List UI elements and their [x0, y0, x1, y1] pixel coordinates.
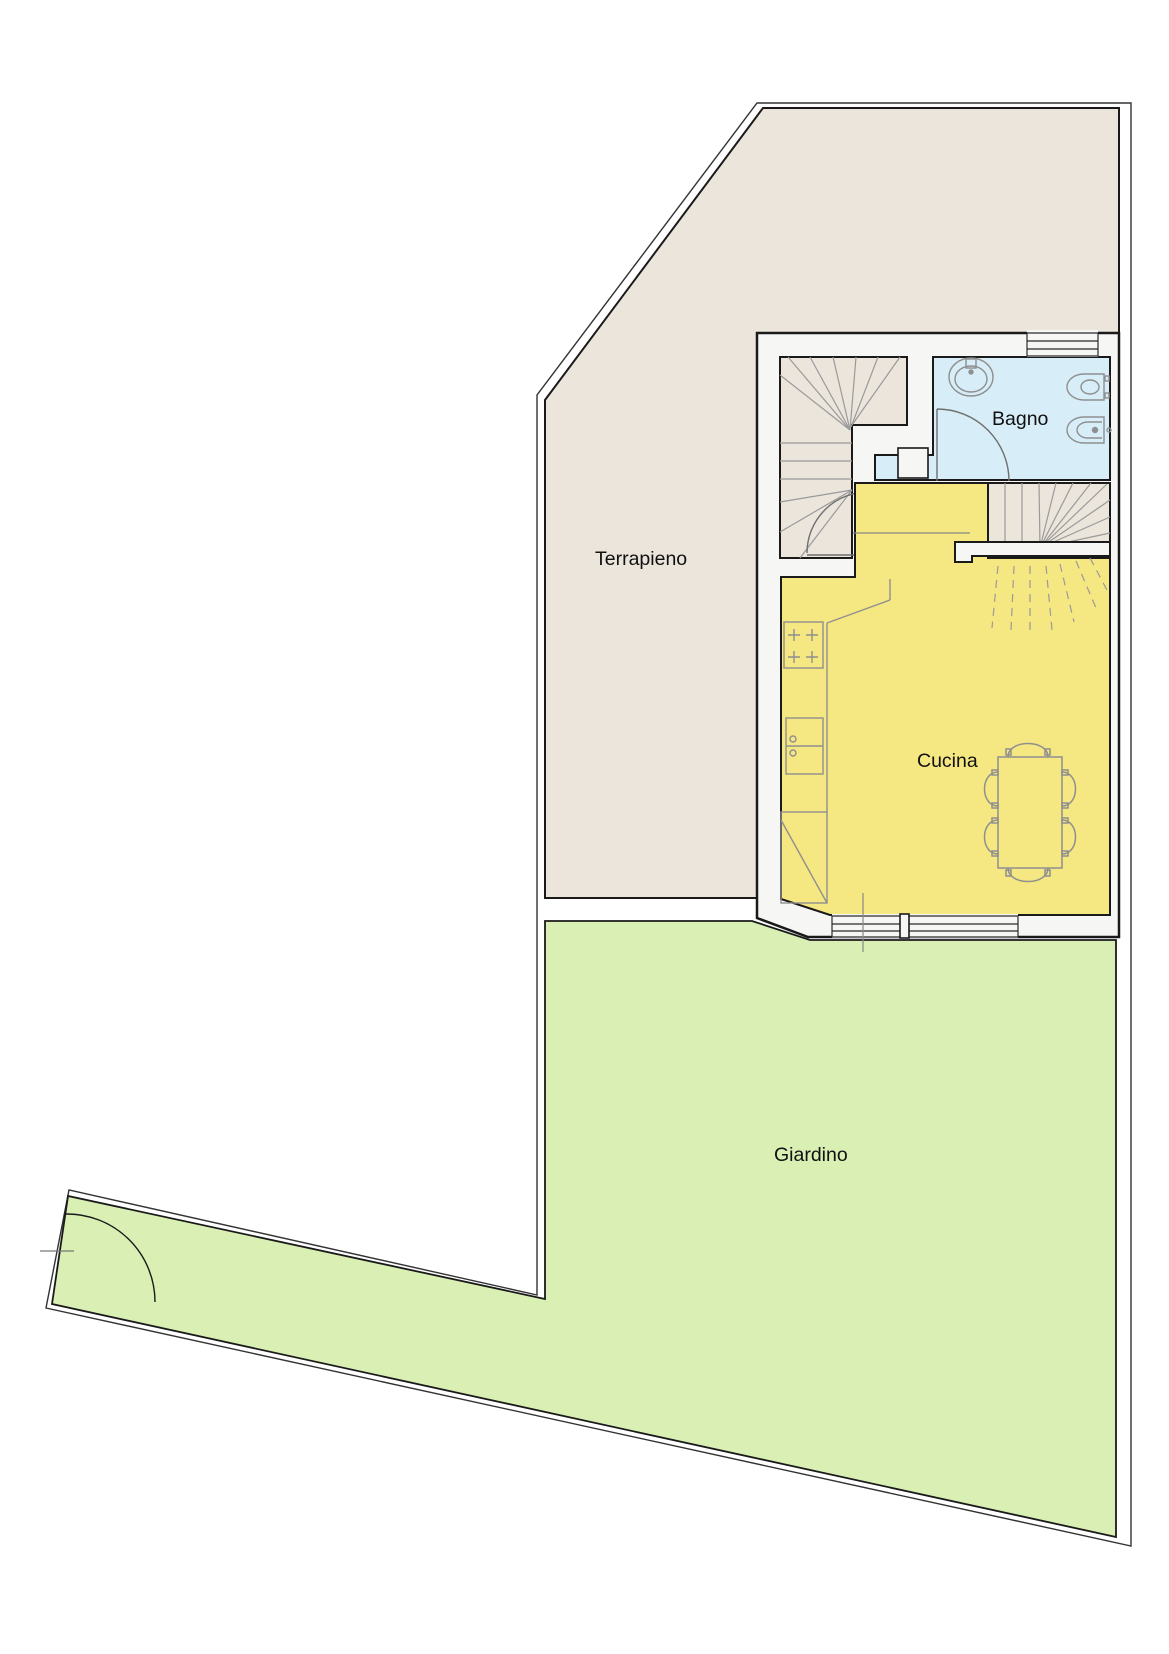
- floor-plan-page: Terrapieno Bagno Cucina Giardino: [0, 0, 1169, 1654]
- label-bagno: Bagno: [992, 408, 1049, 430]
- window-pier: [900, 914, 909, 938]
- giardino-area: [52, 921, 1116, 1537]
- window-bottom: [832, 914, 1018, 938]
- label-cucina: Cucina: [917, 750, 978, 772]
- floor-plan-drawing: Terrapieno Bagno Cucina Giardino: [0, 0, 1169, 1654]
- label-terrapieno: Terrapieno: [595, 548, 687, 570]
- window-top: [1027, 330, 1098, 357]
- wall-pier: [898, 448, 928, 478]
- label-giardino: Giardino: [774, 1144, 848, 1166]
